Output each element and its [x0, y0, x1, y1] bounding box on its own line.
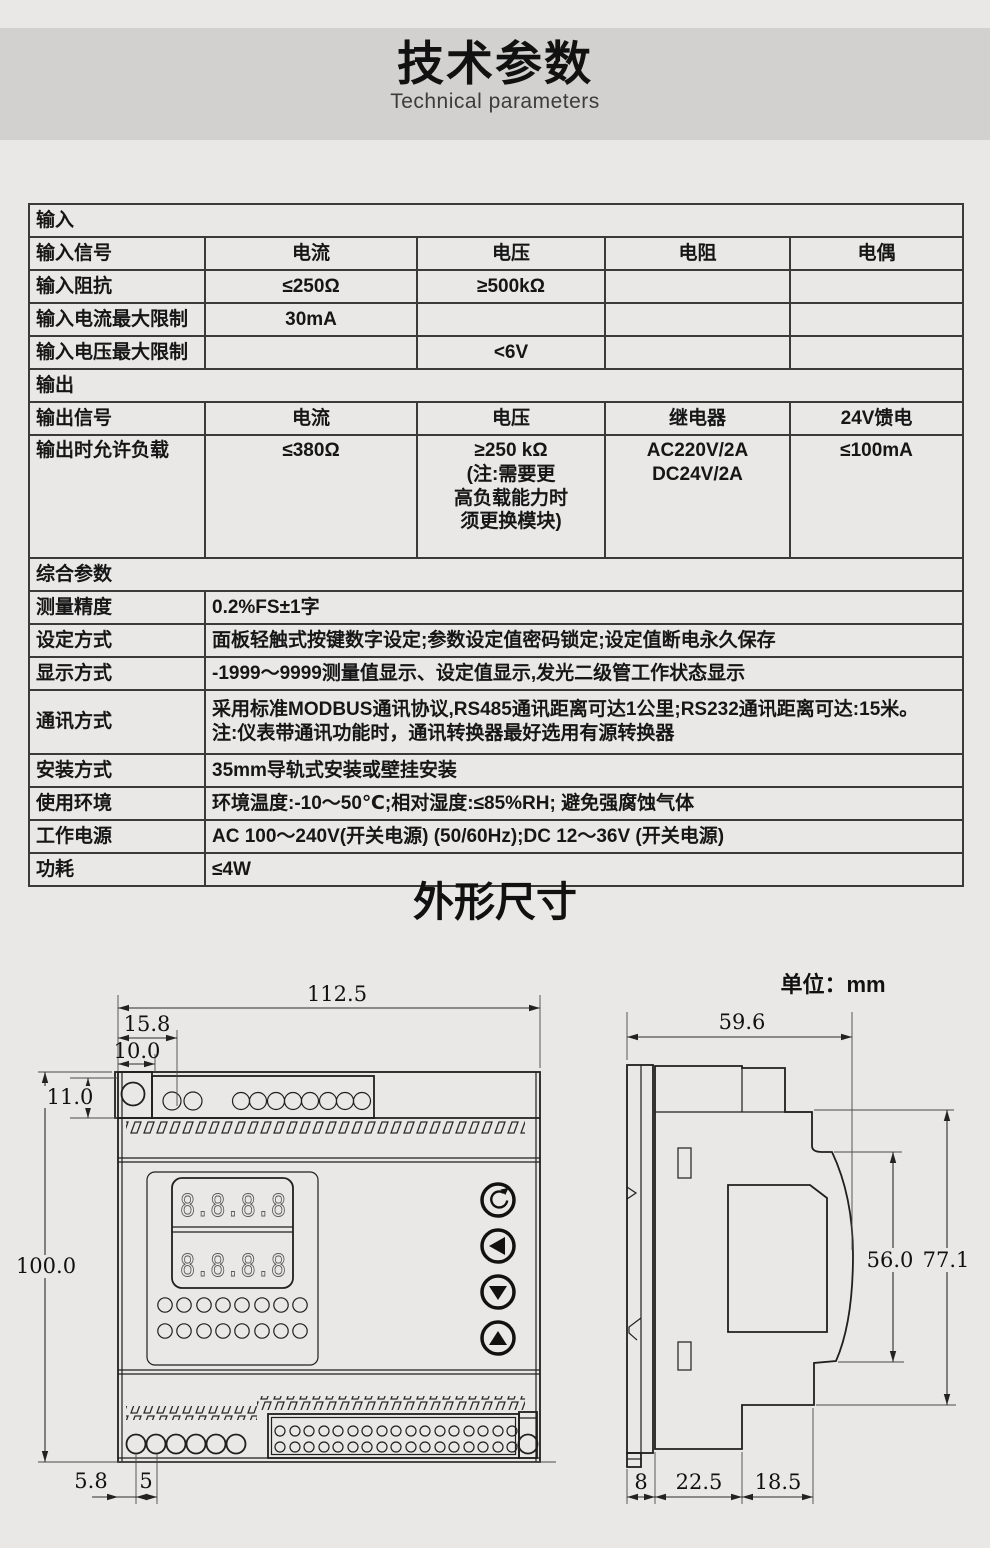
side-window: [728, 1185, 827, 1332]
row-label: 工作电源: [29, 820, 205, 853]
page-title: 技术参数: [0, 28, 990, 90]
dim-side-total-width: 59.6: [719, 1010, 766, 1034]
dim-front-hole-offset: 10.0: [114, 1039, 161, 1063]
row-label: 安装方式: [29, 754, 205, 787]
cell: AC 100～240V(开关电源) (50/60Hz);DC 12～36V (开…: [205, 820, 963, 853]
cell: 电压: [417, 402, 605, 435]
section-row-general: 综合参数: [29, 558, 963, 591]
dim-front-terminal-inset: 15.8: [124, 1012, 171, 1036]
cell: 电流: [205, 237, 417, 270]
cell: -1999～9999测量值显示、设定值显示,发光二级管工作状态显示: [205, 657, 963, 690]
section-cell: 输出: [29, 369, 963, 402]
rail-notch: [627, 1187, 636, 1199]
left-arrow-button: [482, 1230, 514, 1262]
mount-hole: [122, 1083, 145, 1106]
led-indicator-row-top: [158, 1298, 307, 1312]
down-arrow-button: [482, 1276, 514, 1308]
cell: ≤100mA: [790, 435, 963, 558]
left-triangle-icon: [489, 1237, 505, 1255]
cell: [790, 303, 963, 336]
table-row: 输出时允许负载 ≤380Ω ≥250 kΩ (注:需要更 高负载能力时 须更换模…: [29, 435, 963, 558]
table-row: 输出信号 电流 电压 继电器 24V馈电: [29, 402, 963, 435]
cell: ≤250Ω: [205, 270, 417, 303]
keypad: [482, 1184, 514, 1354]
spec-table: 输入 输入信号 电流 电压 电阻 电偶 输入阻抗 ≤250Ω ≥500kΩ 输入…: [28, 203, 964, 887]
cell: 电偶: [790, 237, 963, 270]
led-indicator-row-bottom: [158, 1324, 307, 1338]
connector-pins-row1: [275, 1426, 517, 1436]
table-row: 工作电源 AC 100～240V(开关电源) (50/60Hz);DC 12～3…: [29, 820, 963, 853]
cell: 采用标准MODBUS通讯协议,RS485通讯距离可达1公里;RS232通讯距离可…: [205, 690, 963, 754]
table-row: 通讯方式 采用标准MODBUS通讯协议,RS485通讯距离可达1公里;RS232…: [29, 690, 963, 754]
dim-front-total-width: 112.5: [307, 982, 367, 1006]
side-body-outline: [655, 1066, 853, 1449]
cell: [605, 303, 790, 336]
set-cycle-button: [482, 1184, 514, 1216]
title-band: 技术参数 Technical parameters: [0, 28, 990, 140]
din-rail-strip: [627, 1065, 653, 1453]
seven-segment-display-top: 8.8.8.8: [180, 1189, 286, 1224]
dim-front-bottom-edge-offset: 5.8: [74, 1469, 107, 1493]
dim-side-rail-width: 8: [634, 1470, 647, 1494]
cell: 继电器: [605, 402, 790, 435]
dim-front-top-strip-height: 11.0: [47, 1085, 94, 1109]
connector-pins-row2: [275, 1442, 517, 1452]
cell: 电流: [205, 402, 417, 435]
cell: 电压: [417, 237, 605, 270]
cell: AC220V/2A DC24V/2A: [605, 435, 790, 558]
cell: [417, 303, 605, 336]
row-label: 输出时允许负载: [29, 435, 205, 558]
top-vent-zigzag: [126, 1120, 525, 1134]
row-label: 设定方式: [29, 624, 205, 657]
row-label: 使用环境: [29, 787, 205, 820]
row-label: 输入电流最大限制: [29, 303, 205, 336]
row-label: 输入阻抗: [29, 270, 205, 303]
table-row: 使用环境 环境温度:-10～50℃;相对湿度:≤85%RH; 避免强腐蚀气体: [29, 787, 963, 820]
cell: ≥250 kΩ (注:需要更 高负载能力时 须更换模块): [417, 435, 605, 558]
unit-label: 单位：mm: [780, 972, 885, 997]
table-row: 输入电压最大限制 <6V: [29, 336, 963, 369]
section-cell: 综合参数: [29, 558, 963, 591]
dim-side-mid-depth: 22.5: [676, 1470, 723, 1494]
rail-foot: [627, 1453, 641, 1467]
dim-front-total-height: 100.0: [16, 1254, 76, 1278]
front-view: 8.8.8.8 8.8.8.8: [16, 982, 556, 1504]
section-row-output: 输出: [29, 369, 963, 402]
dim-side-body-depth: 56.0: [867, 1248, 914, 1272]
table-row: 输入阻抗 ≤250Ω ≥500kΩ: [29, 270, 963, 303]
up-triangle-icon: [489, 1331, 507, 1345]
mount-tab: [115, 1072, 152, 1118]
cell: 35mm导轨式安装或壁挂安装: [205, 754, 963, 787]
up-arrow-button: [482, 1322, 514, 1354]
page-subtitle: Technical parameters: [0, 90, 990, 114]
cell: 30mA: [205, 303, 417, 336]
table-row: 输入电流最大限制 30mA: [29, 303, 963, 336]
cell: <6V: [417, 336, 605, 369]
cell: [790, 336, 963, 369]
front-dimensions: 112.5 15.8 10.0 11.0 100.0 5.8 5: [16, 982, 556, 1504]
bottom-vent-zigzag-left: [126, 1406, 257, 1420]
table-row: 输入信号 电流 电压 电阻 电偶: [29, 237, 963, 270]
dimensions-section-title: 外形尺寸: [0, 868, 990, 928]
down-triangle-icon: [489, 1286, 507, 1300]
dimension-drawing: 8.8.8.8 8.8.8.8: [0, 955, 990, 1548]
row-label: 显示方式: [29, 657, 205, 690]
side-top-strip-lines: [655, 1068, 812, 1112]
table-row: 测量精度 0.2%FS±1字: [29, 591, 963, 624]
spec-sheet-page: 技术参数 Technical parameters 输入 输入信号 电流 电压 …: [0, 0, 990, 1548]
row-label: 输入电压最大限制: [29, 336, 205, 369]
bottom-vent-zigzag-right: [257, 1396, 525, 1410]
cell: [205, 336, 417, 369]
dim-side-front-depth: 18.5: [755, 1470, 802, 1494]
side-view: 单位：mm 59.6 56.0 77.1 8 22.5 18.5: [627, 972, 973, 1504]
table-row: 安装方式 35mm导轨式安装或壁挂安装: [29, 754, 963, 787]
rail-hook: [629, 1318, 641, 1340]
table-row: 设定方式 面板轻触式按键数字设定;参数设定值密码锁定;设定值断电永久保存: [29, 624, 963, 657]
dim-side-overall-depth: 77.1: [923, 1248, 970, 1272]
row-label: 通讯方式: [29, 690, 205, 754]
seven-segment-display-bottom: 8.8.8.8: [180, 1249, 286, 1284]
row-label: 测量精度: [29, 591, 205, 624]
cell: [605, 336, 790, 369]
cell: ≤380Ω: [205, 435, 417, 558]
side-slot-bottom: [678, 1342, 691, 1370]
cell: 24V馈电: [790, 402, 963, 435]
side-dimensions: 单位：mm 59.6 56.0 77.1 8 22.5 18.5: [627, 972, 973, 1504]
dim-front-terminal-pitch: 5: [139, 1469, 152, 1493]
section-row-input: 输入: [29, 204, 963, 237]
table-row: 显示方式 -1999～9999测量值显示、设定值显示,发光二级管工作状态显示: [29, 657, 963, 690]
bottom-terminal-holes: [127, 1435, 246, 1454]
cell: [790, 270, 963, 303]
top-terminal-holes: [163, 1092, 371, 1110]
cell: 电阻: [605, 237, 790, 270]
cell: 面板轻触式按键数字设定;参数设定值密码锁定;设定值断电永久保存: [205, 624, 963, 657]
row-label: 输出信号: [29, 402, 205, 435]
cell: 0.2%FS±1字: [205, 591, 963, 624]
section-cell: 输入: [29, 204, 963, 237]
row-label: 输入信号: [29, 237, 205, 270]
side-slot-top: [678, 1148, 691, 1178]
cell: [605, 270, 790, 303]
bottom-right-hole: [519, 1435, 538, 1454]
cell: ≥500kΩ: [417, 270, 605, 303]
display-divider: [172, 1227, 293, 1232]
cell: 环境温度:-10～50℃;相对湿度:≤85%RH; 避免强腐蚀气体: [205, 787, 963, 820]
